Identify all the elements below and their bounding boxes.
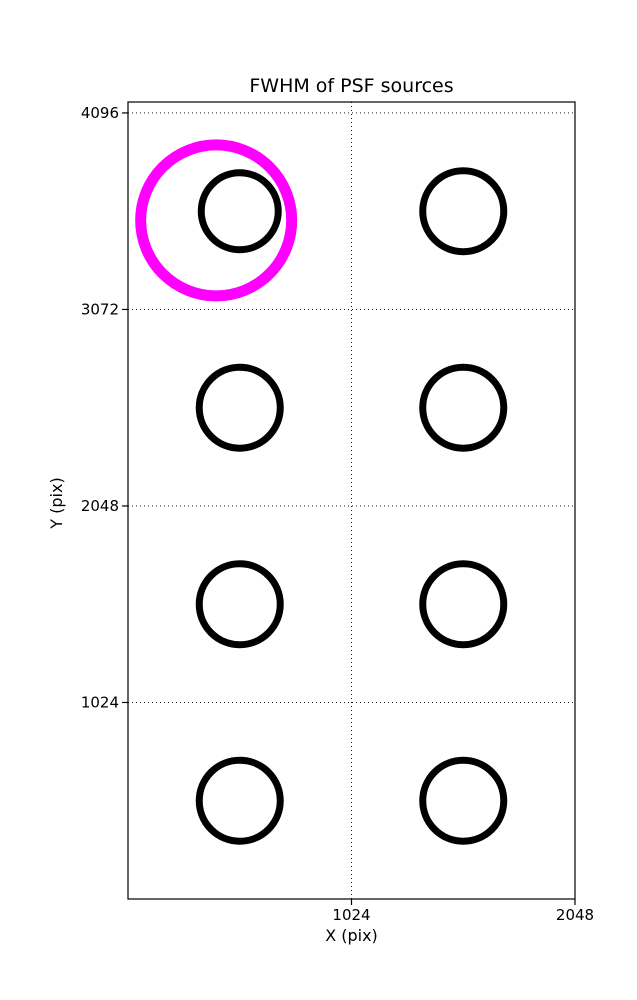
y-tick-label-1024: 1024 (81, 693, 119, 711)
x-tick-label-2048: 2048 (556, 906, 594, 924)
psf-source-circle-6 (199, 760, 280, 841)
tick-labels: 102420483072409610242048 (81, 104, 594, 924)
psf-source-circle-1 (423, 171, 504, 252)
figure: 102420483072409610242048 FWHM of PSF sou… (0, 0, 637, 1000)
psf-source-circle-4 (199, 564, 280, 645)
psf-source-circle-0 (201, 173, 278, 250)
axis-ticks (122, 113, 575, 905)
psf-source-circle-2 (199, 367, 280, 448)
fwhm-plot: 102420483072409610242048 FWHM of PSF sou… (0, 0, 637, 1000)
y-tick-label-4096: 4096 (81, 104, 119, 122)
plot-title: FWHM of PSF sources (249, 75, 453, 97)
y-tick-label-3072: 3072 (81, 300, 119, 318)
y-tick-label-2048: 2048 (81, 497, 119, 515)
psf-source-circle-5 (423, 564, 504, 645)
psf-source-circle-7 (423, 760, 504, 841)
y-axis-label: Y (pix) (47, 477, 66, 529)
x-axis-label: X (pix) (325, 926, 378, 945)
psf-source-circle-3 (423, 367, 504, 448)
highlighted-source-marker (141, 145, 292, 296)
highlight-circle (141, 145, 292, 296)
gridlines (128, 102, 575, 899)
plot-border (128, 102, 575, 899)
x-tick-label-1024: 1024 (332, 906, 370, 924)
